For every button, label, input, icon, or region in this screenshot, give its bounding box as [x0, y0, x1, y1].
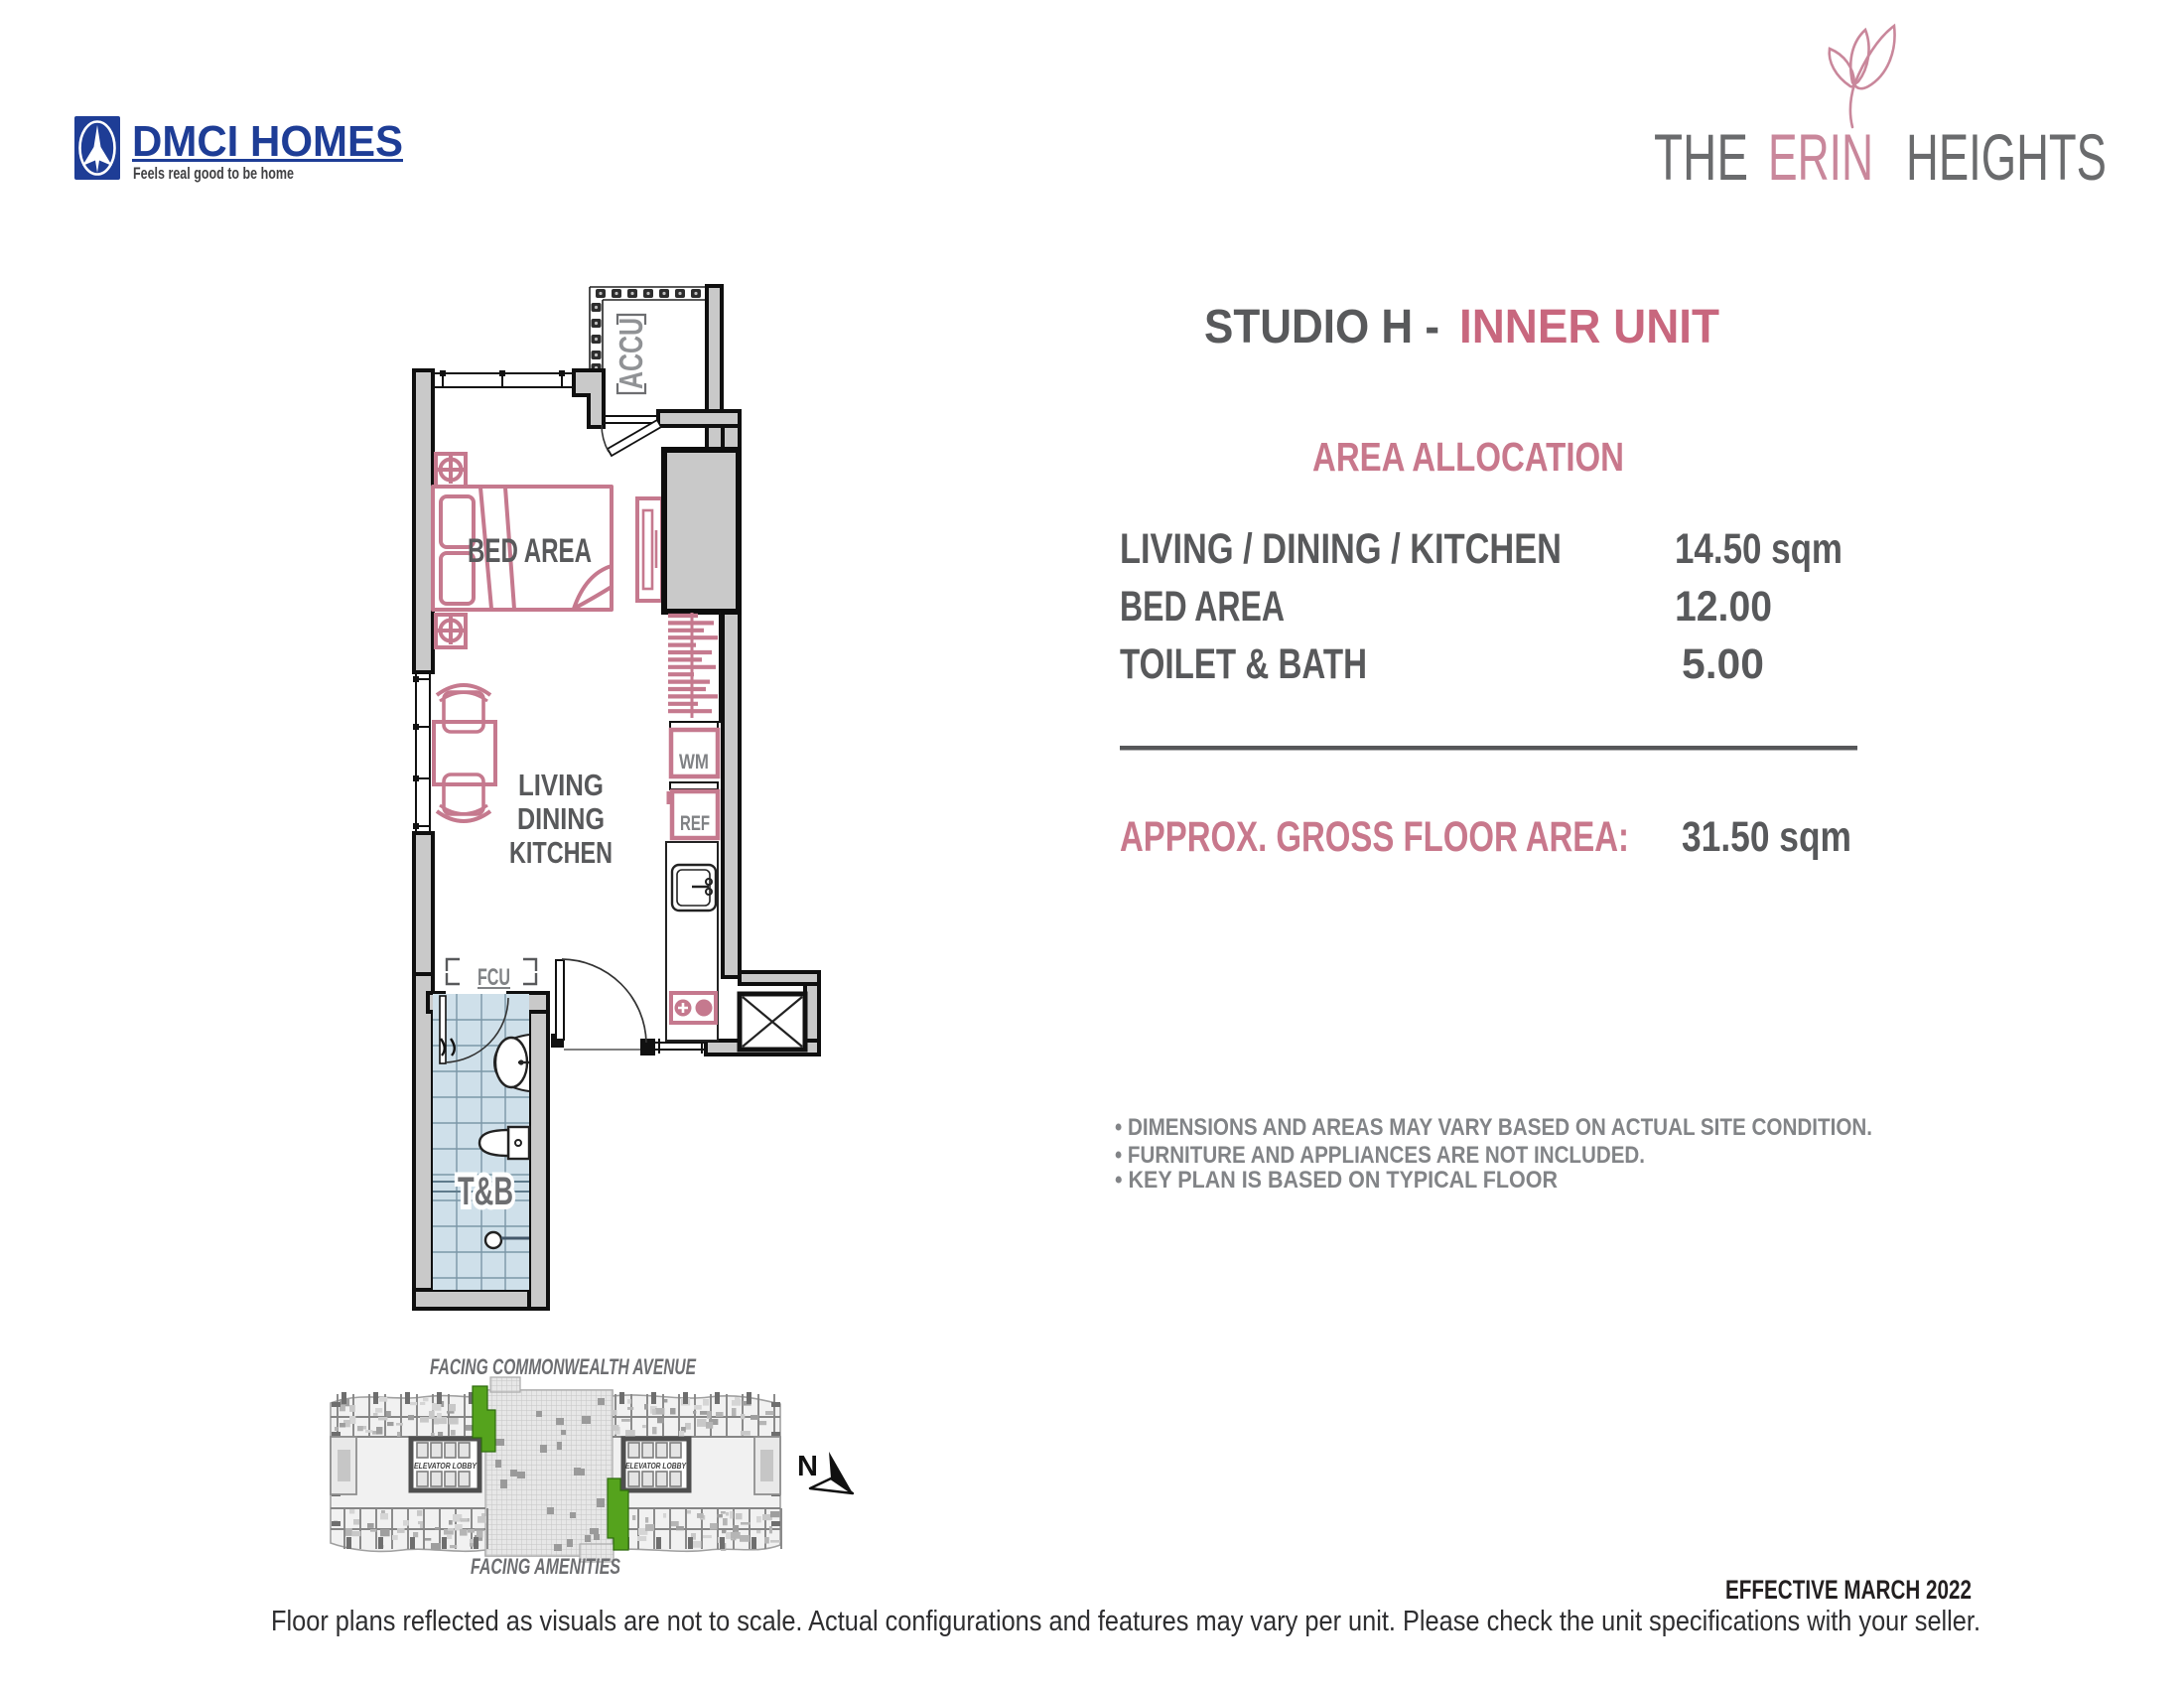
svg-text:DINING: DINING: [517, 801, 605, 836]
svg-text:BED AREA: BED AREA: [1120, 583, 1285, 631]
svg-text:N: N: [797, 1451, 818, 1482]
svg-text:KITCHEN: KITCHEN: [509, 835, 613, 870]
svg-text:LIVING / DINING / KITCHEN: LIVING / DINING / KITCHEN: [1120, 525, 1562, 573]
svg-text:14.50 sqm: 14.50 sqm: [1675, 525, 1843, 573]
svg-text:THE: THE: [1654, 120, 1748, 194]
svg-text:BED AREA: BED AREA: [468, 532, 592, 570]
svg-text:T&B: T&B: [458, 1170, 513, 1213]
svg-text:WM: WM: [679, 751, 709, 774]
svg-text:Floor plans reflected as visua: Floor plans reflected as visuals are not…: [271, 1606, 1980, 1637]
svg-text:DMCI HOMES: DMCI HOMES: [132, 117, 403, 166]
svg-text:Feels real good to be home: Feels real good to be home: [133, 164, 294, 183]
svg-text:STUDIO H -: STUDIO H -: [1204, 301, 1439, 353]
svg-text:EFFECTIVE MARCH 2022: EFFECTIVE MARCH 2022: [1725, 1575, 1972, 1605]
svg-text:HEIGHTS: HEIGHTS: [1906, 120, 2107, 194]
svg-text:TOILET & BATH: TOILET & BATH: [1120, 640, 1367, 688]
svg-text:FACING AMENITIES: FACING AMENITIES: [471, 1554, 620, 1579]
svg-text:• KEY PLAN IS BASED ON TYPICAL: • KEY PLAN IS BASED ON TYPICAL FLOOR: [1115, 1167, 1558, 1194]
svg-text:ERIN: ERIN: [1768, 120, 1873, 194]
svg-text:APPROX. GROSS FLOOR AREA:: APPROX. GROSS FLOOR AREA:: [1120, 813, 1629, 861]
svg-text:• DIMENSIONS AND AREAS MAY VAR: • DIMENSIONS AND AREAS MAY VARY BASED ON…: [1115, 1114, 1872, 1141]
svg-text:• FURNITURE AND APPLIANCES ARE: • FURNITURE AND APPLIANCES ARE NOT INCLU…: [1115, 1142, 1645, 1169]
svg-text:REF: REF: [680, 812, 710, 835]
svg-text:LIVING: LIVING: [518, 768, 604, 802]
svg-text:FACING COMMONWEALTH AVENUE: FACING COMMONWEALTH AVENUE: [430, 1354, 697, 1379]
svg-text:ELEVATOR LOBBY: ELEVATOR LOBBY: [625, 1462, 687, 1471]
svg-text:12.00: 12.00: [1675, 583, 1772, 631]
svg-text:FCU: FCU: [478, 964, 510, 991]
svg-text:ACCU: ACCU: [613, 318, 649, 389]
svg-text:AREA ALLOCATION: AREA ALLOCATION: [1312, 434, 1624, 480]
svg-text:31.50 sqm: 31.50 sqm: [1682, 813, 1851, 861]
svg-text:INNER UNIT: INNER UNIT: [1459, 301, 1719, 353]
svg-text:ELEVATOR LOBBY: ELEVATOR LOBBY: [414, 1462, 478, 1471]
svg-text:5.00: 5.00: [1682, 640, 1764, 688]
